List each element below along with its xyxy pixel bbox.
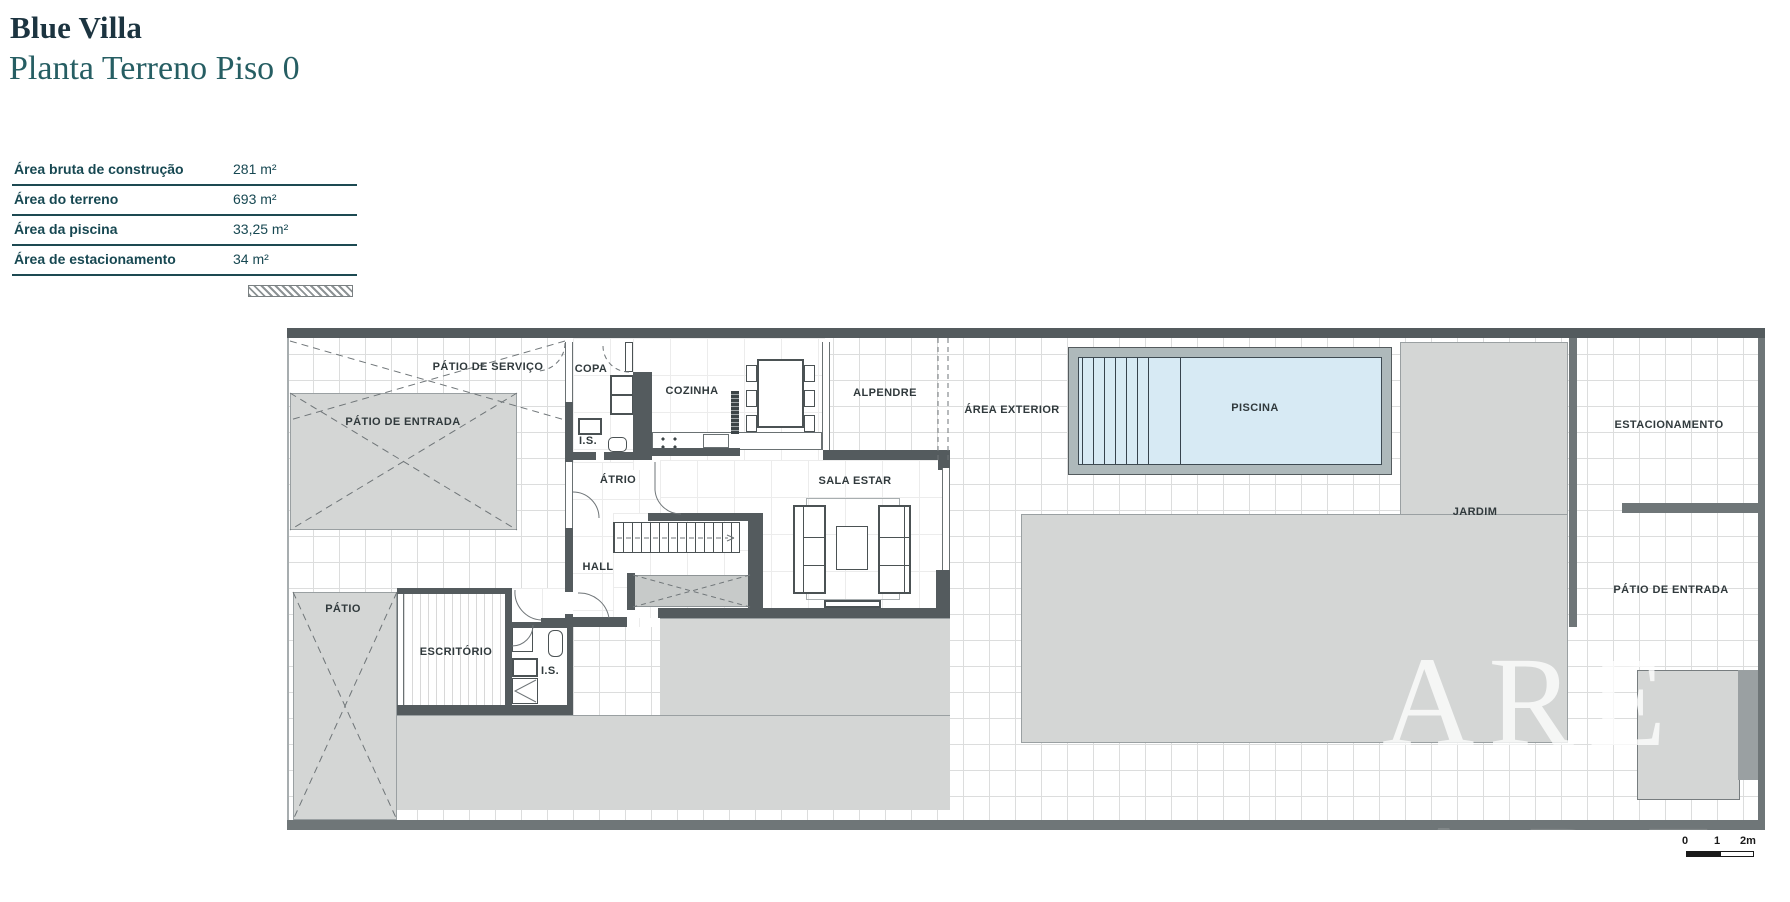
boundary-line-left	[287, 338, 289, 820]
stove-burners	[655, 434, 679, 448]
row-value: 281 m²	[233, 161, 277, 177]
table-row: Área de estacionamento 34 m²	[12, 246, 357, 276]
wall-segment	[397, 588, 512, 594]
wall-segment	[565, 617, 627, 627]
patio-left-area	[293, 592, 397, 820]
scale-bar-segment-open	[1720, 851, 1754, 857]
row-value: 693 m²	[233, 191, 277, 207]
wall-segment	[645, 448, 740, 456]
parking-wall-stub	[1622, 503, 1765, 513]
jardim-area-upper	[1400, 342, 1568, 515]
deck-sala	[660, 618, 950, 718]
row-value: 34 m²	[233, 251, 269, 267]
is-bottom-sink	[512, 658, 538, 677]
row-label: Área do terreno	[14, 191, 118, 207]
garden-parking-wall	[1569, 338, 1577, 627]
copa-door-leaf	[625, 342, 633, 372]
page-title: Blue Villa	[10, 10, 142, 46]
room-label-patio-servico: PÁTIO DE SERVIÇO	[433, 361, 544, 373]
window	[565, 342, 573, 402]
scale-label-0: 0	[1682, 835, 1688, 847]
room-label-patio-entrada-left: PÁTIO DE ENTRADA	[345, 416, 460, 428]
row-value: 33,25 m²	[233, 221, 288, 237]
tv-bench	[824, 600, 881, 608]
room-label-escritorio: ESCRITÓRIO	[420, 646, 492, 658]
window	[822, 342, 830, 450]
storage-box	[512, 678, 538, 704]
chair	[804, 365, 815, 382]
room-label-atrio: ÁTRIO	[600, 474, 636, 486]
scale-bar-segment-filled	[1686, 851, 1720, 857]
wall-segment	[541, 618, 570, 626]
wall-segment	[748, 513, 763, 610]
wall-segment	[573, 452, 596, 460]
page-subtitle: Planta Terreno Piso 0	[9, 50, 300, 88]
window	[565, 462, 573, 528]
stair-handrail	[648, 513, 748, 521]
boundary-wall-right	[1758, 338, 1765, 820]
patio-entrada-left-area	[290, 393, 517, 530]
dining-table	[757, 359, 804, 428]
room-label-copa: COPA	[575, 363, 608, 375]
room-label-jardim: JARDIM	[1453, 506, 1498, 518]
room-label-is-bottom: I.S.	[541, 665, 559, 677]
room-label-estacionamento: ESTACIONAMENTO	[1614, 419, 1723, 431]
room-label-hall: HALL	[583, 561, 614, 573]
table-row: Área bruta de construção 281 m²	[12, 156, 357, 186]
room-label-patio-entrada-right: PÁTIO DE ENTRADA	[1613, 584, 1728, 596]
pool-lane-line	[1180, 358, 1181, 464]
wall-segment	[567, 622, 573, 705]
wall-segment	[633, 372, 652, 460]
stair-void	[633, 575, 750, 607]
pool-lane-lines	[1082, 358, 1157, 464]
room-label-is-top: I.S.	[579, 435, 597, 447]
row-label: Área de estacionamento	[14, 251, 176, 267]
area-info-table: Área bruta de construção 281 m² Área do …	[12, 156, 357, 276]
fridge	[731, 391, 739, 434]
table-row: Área do terreno 693 m²	[12, 186, 357, 216]
chair	[746, 415, 757, 432]
room-label-piscina: PISCINA	[1231, 402, 1278, 414]
wall-segment	[565, 528, 573, 592]
boundary-hatch	[248, 285, 353, 297]
room-label-alpendre: ALPENDRE	[853, 387, 917, 399]
scale-label-2m: 2m	[1740, 835, 1756, 847]
floorplan-page: Blue Villa Planta Terreno Piso 0 Área br…	[0, 0, 1790, 902]
chair	[746, 390, 757, 407]
is-bottom-toilet	[548, 630, 563, 657]
wall-segment	[505, 594, 512, 705]
sofa-left	[793, 505, 826, 594]
boundary-wall-top	[287, 328, 1765, 338]
wall-segment	[627, 573, 635, 610]
window	[397, 594, 404, 705]
chair	[804, 415, 815, 432]
window	[942, 468, 950, 570]
wall-segment	[604, 452, 633, 460]
scale-label-1: 1	[1714, 835, 1720, 847]
stairs	[613, 522, 740, 553]
wall-segment	[936, 570, 950, 618]
row-label: Área bruta de construção	[14, 161, 184, 177]
wall-segment	[397, 705, 573, 715]
copa-cabinet-divider	[612, 394, 632, 396]
room-label-area-exterior: ÁREA EXTERIOR	[964, 404, 1059, 416]
room-label-cozinha: COZINHA	[666, 385, 719, 397]
room-label-patio: PÁTIO	[325, 603, 361, 615]
sofa-right	[878, 505, 911, 594]
wall-segment	[823, 450, 950, 460]
chair	[804, 390, 815, 407]
is-top-toilet	[608, 437, 627, 452]
wall-segment	[658, 608, 950, 618]
shower	[512, 625, 533, 652]
deck-bottom	[397, 715, 950, 810]
row-label: Área da piscina	[14, 221, 118, 237]
coffee-table	[836, 526, 868, 570]
room-label-sala-estar: SALA ESTAR	[818, 475, 891, 487]
kitchen-sink	[703, 434, 729, 448]
table-row: Área da piscina 33,25 m²	[12, 216, 357, 246]
wall-segment	[565, 402, 573, 462]
is-top-sink	[578, 418, 602, 435]
watermark: ARE	[1382, 638, 1680, 766]
chair	[746, 365, 757, 382]
